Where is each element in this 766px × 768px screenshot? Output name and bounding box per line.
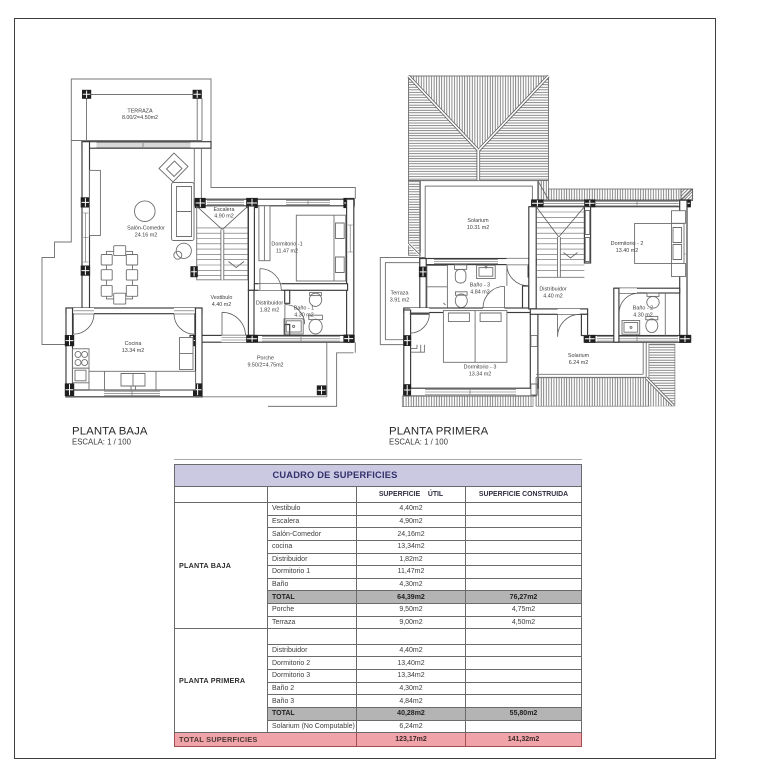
- svg-text:Salón-Comedor: Salón-Comedor: [127, 226, 165, 232]
- svg-text:ESCALA: 1 / 100: ESCALA: 1 / 100: [72, 438, 132, 447]
- svg-text:9.50/2=4.75m2: 9.50/2=4.75m2: [247, 363, 283, 369]
- svg-text:ESCALA: 1 / 100: ESCALA: 1 / 100: [389, 438, 449, 447]
- svg-text:3.91 m2: 3.91 m2: [390, 298, 409, 304]
- svg-text:13.34 m2: 13.34 m2: [122, 348, 144, 354]
- svg-text:4.30 m2: 4.30 m2: [294, 313, 313, 319]
- svg-text:4.90 m2: 4.90 m2: [214, 214, 233, 220]
- svg-text:Terraza: Terraza: [391, 291, 409, 297]
- svg-text:Distribuidor: Distribuidor: [256, 301, 283, 307]
- svg-text:Dormitorio - 2: Dormitorio - 2: [611, 241, 644, 247]
- svg-text:PLANTA PRIMERA: PLANTA PRIMERA: [389, 426, 489, 438]
- svg-text:Baño - 3: Baño - 3: [470, 283, 490, 289]
- svg-text:Solarium: Solarium: [568, 353, 590, 359]
- svg-text:24.16 m2: 24.16 m2: [135, 233, 157, 239]
- svg-text:4.40 m2: 4.40 m2: [212, 302, 231, 308]
- svg-text:8.00/2=4.50m2: 8.00/2=4.50m2: [122, 115, 158, 121]
- svg-text:TERRAZA: TERRAZA: [127, 109, 153, 115]
- svg-text:13.40 m2: 13.40 m2: [616, 248, 638, 254]
- svg-text:Baño - 1: Baño - 1: [294, 306, 314, 312]
- svg-text:Dormitorio - 3: Dormitorio - 3: [464, 365, 497, 371]
- svg-text:Cocina: Cocina: [125, 341, 142, 347]
- svg-text:Solarium: Solarium: [467, 218, 489, 224]
- svg-text:10.31 m2: 10.31 m2: [467, 225, 489, 231]
- svg-text:Escalera: Escalera: [214, 207, 235, 213]
- svg-text:4.40 m2: 4.40 m2: [543, 294, 562, 300]
- svg-text:PLANTA BAJA: PLANTA BAJA: [72, 426, 148, 438]
- svg-text:6.24 m2: 6.24 m2: [569, 360, 588, 366]
- svg-text:1.82 m2: 1.82 m2: [260, 308, 279, 314]
- svg-text:4.84 m2: 4.84 m2: [470, 290, 489, 296]
- svg-text:Dormitorio -1: Dormitorio -1: [271, 242, 302, 248]
- svg-text:Porche: Porche: [257, 356, 274, 362]
- svg-text:11.47 m2: 11.47 m2: [276, 249, 298, 255]
- svg-text:4.30 m2: 4.30 m2: [633, 313, 652, 319]
- svg-text:13.34 m2: 13.34 m2: [469, 372, 491, 378]
- svg-text:Distribuidor: Distribuidor: [539, 287, 566, 293]
- svg-text:Vestibulo: Vestibulo: [211, 295, 233, 301]
- svg-text:Baño - 2: Baño - 2: [633, 306, 653, 312]
